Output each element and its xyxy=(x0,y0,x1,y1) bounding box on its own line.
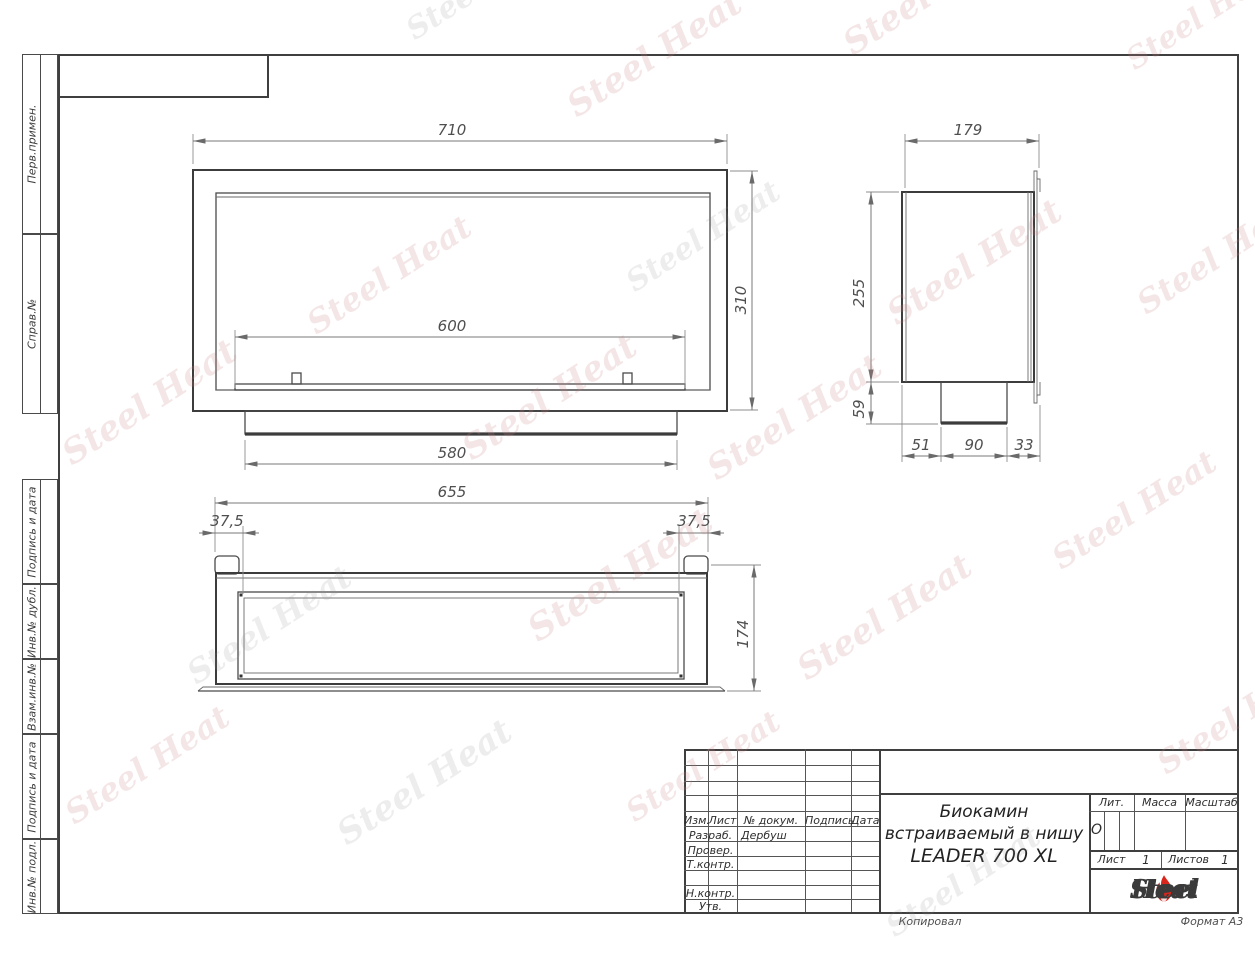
dim-side-height: 255 xyxy=(850,279,868,308)
dim-side-offset-right: 33 xyxy=(1014,436,1033,454)
dim-front-burner-width: 600 xyxy=(438,317,467,335)
tb-sheets-label: Листов xyxy=(1161,853,1216,866)
dim-top-flange-left: 37,5 xyxy=(210,512,243,530)
dim-top-depth: 174 xyxy=(734,620,752,649)
title-block: Изм. Лист № докум. Подпись Дата Разраб. … xyxy=(684,749,1239,914)
tb-col-podpis: Подпись xyxy=(805,814,851,827)
tb-col-data: Дата xyxy=(851,814,879,827)
drawing-sheet: Перв.примен. Справ.№ Подпись и дата Инв.… xyxy=(0,0,1255,970)
dim-top-flange-right: 37,5 xyxy=(677,512,710,530)
product-title: Биокамин встраиваемый в нишу LEADER 700 … xyxy=(879,793,1089,912)
dim-side-burner-box-height: 59 xyxy=(850,399,868,418)
tb-row-tkontr: Т.контр. xyxy=(684,858,737,871)
tb-razrab-name: Дербуш xyxy=(741,829,805,842)
tb-row-razrab: Разраб. xyxy=(684,829,737,842)
tb-row-prover: Провер. xyxy=(684,844,737,857)
dim-side-burner-box-depth: 90 xyxy=(964,436,983,454)
tb-row-nkontr: Н.контр. xyxy=(684,887,737,900)
tb-sheet-value: 1 xyxy=(1134,853,1158,867)
dim-top-width: 655 xyxy=(438,483,467,501)
dim-front-height: 310 xyxy=(732,286,750,315)
tb-col-list: Лист xyxy=(708,814,737,827)
tb-lit-label: Лит. xyxy=(1089,796,1134,809)
product-title-line3: LEADER 700 XL xyxy=(910,845,1057,867)
tb-col-izm: Изм. xyxy=(684,814,708,827)
footer-copied: Копировал xyxy=(875,915,985,928)
product-title-line2: встраиваемый в нишу xyxy=(885,823,1083,845)
tb-scale-label: Масштаб xyxy=(1185,796,1238,809)
tb-sheets-value: 1 xyxy=(1214,853,1236,867)
tb-row-utv: Утв. xyxy=(684,900,737,913)
tb-mass-label: Масса xyxy=(1134,796,1185,809)
tb-col-doc: № докум. xyxy=(737,814,805,827)
dim-side-offset-left: 51 xyxy=(911,436,930,454)
dim-front-base-width: 580 xyxy=(438,444,467,462)
tb-lit-value: О xyxy=(1089,822,1104,838)
logo-heat-text: Heat xyxy=(1131,875,1197,905)
tb-sheet-label: Лист xyxy=(1089,853,1134,866)
dim-side-depth: 179 xyxy=(954,121,983,139)
steelheat-logo: Steel Heat xyxy=(1089,868,1239,912)
top-view: 655 37,5 37,5 174 xyxy=(198,483,761,691)
dim-front-width: 710 xyxy=(438,121,467,139)
product-title-line1: Биокамин xyxy=(940,801,1029,823)
footer-format: Формат А3 xyxy=(1157,915,1255,928)
side-view: 179 255 59 51 90 33 xyxy=(850,121,1040,462)
front-view: 710 310 600 580 xyxy=(193,121,758,470)
